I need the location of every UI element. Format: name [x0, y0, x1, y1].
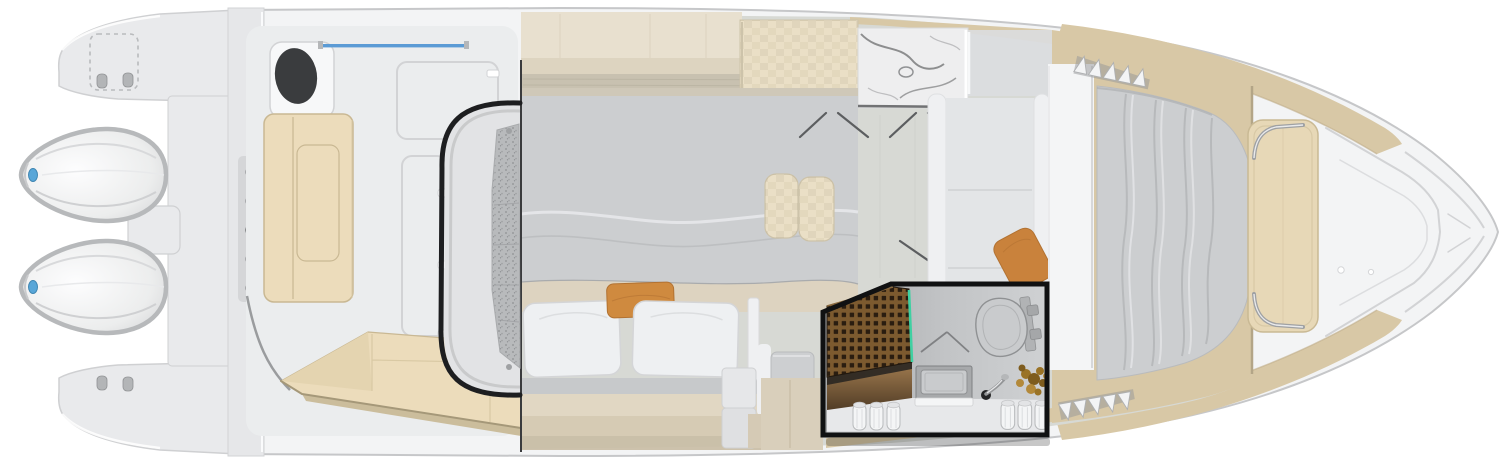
vanity-sink [915, 366, 973, 406]
hatch-latch [487, 70, 499, 77]
galley-side-wall [968, 30, 1052, 96]
cleat [123, 377, 133, 391]
cleat [123, 73, 133, 87]
pillow-white [523, 300, 622, 377]
twin-stools [765, 174, 834, 241]
outboard-engine-port [21, 129, 166, 221]
cleat [97, 74, 107, 88]
marble-countertop [858, 28, 968, 108]
cockpit-l-bench [264, 114, 353, 302]
pillow-white [632, 301, 739, 378]
head-compartment [823, 284, 1050, 446]
outboard-engine-starboard [21, 241, 166, 333]
mid-cabin-berth [521, 88, 858, 450]
bow-sun-pad [1248, 120, 1318, 332]
step-platform [761, 378, 823, 450]
bulkhead [1048, 64, 1094, 370]
deck-hardware-dot [1338, 267, 1344, 273]
deck-hardware-dot [1368, 269, 1373, 274]
stern-swim-platform [59, 10, 238, 454]
windshield-trim [322, 44, 464, 47]
towel-rolls-left [853, 402, 900, 430]
floor-plan-svg [0, 0, 1500, 464]
bow-cabin [1048, 30, 1256, 423]
towel-rolls-right [1001, 400, 1049, 429]
cleat [97, 376, 107, 390]
boat-floor-plan [0, 0, 1500, 464]
